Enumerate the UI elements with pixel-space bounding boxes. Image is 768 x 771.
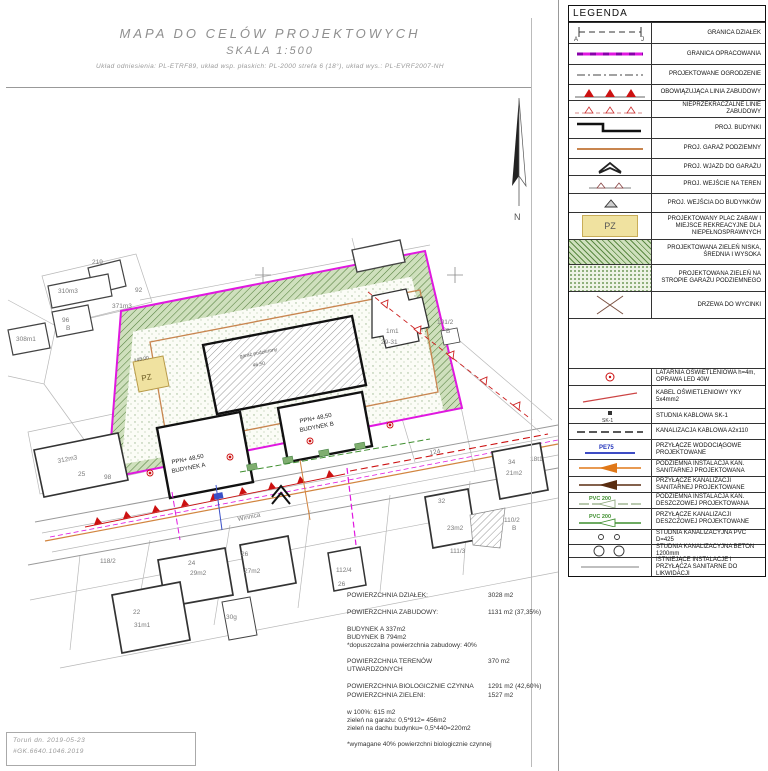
legend-label: PROJ. BUDYNKI bbox=[652, 118, 765, 138]
cable-duct-symbol bbox=[569, 424, 652, 439]
legend-row: NIEPRZEKRACZALNE LINIE ZABUDOWY bbox=[569, 100, 765, 117]
parcel-boundary-symbol: A J bbox=[569, 23, 652, 43]
parcel-label: 29-31 bbox=[381, 339, 398, 346]
stat-value: 3028 m2 bbox=[488, 592, 513, 600]
parcel-label: 24 bbox=[188, 560, 196, 567]
parcel-label: 1m1 bbox=[386, 328, 399, 335]
legend-label: STUDNIA KABLOWA SK-1 bbox=[652, 409, 765, 423]
building-entrance-symbol bbox=[569, 194, 652, 212]
legend-label: GRANICA OPRACOWANIA bbox=[652, 44, 765, 64]
stat-label: POWIERZCHNIA ZIELENI: bbox=[347, 692, 488, 700]
legend-row: GRANICA OPRACOWANIA bbox=[569, 43, 765, 64]
parcel-label: 22 bbox=[133, 609, 141, 616]
legend-row: KABEL OŚWIETLENIOWY YKY 5x4mm2 bbox=[569, 385, 765, 408]
footer-date: Toruń dn. 2019-05-23 bbox=[13, 737, 189, 744]
stat-value: 1291 m2 (42,60%) bbox=[488, 683, 541, 691]
parcel-label: 21m2 bbox=[506, 470, 523, 477]
setback-line-symbol bbox=[569, 101, 652, 117]
parcel-label: 23m2 bbox=[447, 525, 464, 532]
legend-label: PROJ. WEJŚCIA DO BUDYNKÓW bbox=[652, 194, 765, 212]
legend-spacer-row bbox=[569, 318, 765, 368]
legend-row: SK-1 STUDNIA KABLOWA SK-1 bbox=[569, 408, 765, 423]
legend-label: GRANICA DZIAŁEK bbox=[652, 23, 765, 43]
parcel-label: 32 bbox=[438, 498, 446, 505]
footer-case-number: #GK.6640.1046.2019 bbox=[13, 748, 189, 755]
water-connection-marker bbox=[214, 492, 224, 500]
map-title: MAPA DO CELÓW PROJEKTOWYCH bbox=[20, 26, 520, 41]
legend-label: DRZEWA DO WYCINKI bbox=[652, 292, 765, 318]
parcel-label: 34 bbox=[508, 459, 516, 466]
legend-row: PROJ. WEJŚCIE NA TEREN bbox=[569, 175, 765, 193]
parcel-label: 25 bbox=[78, 471, 86, 478]
sanitary-connection-symbol bbox=[569, 477, 652, 492]
parcel-label: 219 bbox=[92, 259, 103, 266]
legend-label: PROJ. WEJŚCIE NA TEREN bbox=[652, 176, 765, 193]
stat-row: POWIERZCHNIA ZIELENI: 1527 m2 bbox=[347, 692, 561, 700]
stat-label: POWIERZCHNIA BIOLOGICZNIE CZYNNA bbox=[347, 683, 488, 691]
legend-label: LATARNIA OŚWIETLENIOWA h=4m, OPRAWA LED … bbox=[652, 369, 765, 385]
parcel-label: 310m3 bbox=[58, 288, 78, 295]
north-label: N bbox=[514, 212, 521, 222]
stat-row: POWIERZCHNIA ZABUDOWY: 1131 m2 (37,35%) bbox=[347, 609, 561, 617]
legend-row: STUDNIA KANALIZACYJNA PVC D=425 bbox=[569, 529, 765, 544]
legend-label: STUDNIA KANALIZACYJNA PVC D=425 bbox=[652, 530, 765, 544]
legend-row: PROJEKTOWANE OGRODZENIE bbox=[569, 64, 765, 84]
stat-value: 1131 m2 (37,35%) bbox=[488, 609, 541, 617]
footer-box: Toruń dn. 2019-05-23 #GK.6640.1046.2019 bbox=[6, 732, 196, 766]
garage-entry-symbol bbox=[569, 159, 652, 175]
street-name: Winnica bbox=[237, 512, 261, 523]
svg-text:A: A bbox=[574, 37, 578, 42]
building-b-area: BUDYNEK B 794m2 bbox=[347, 634, 561, 642]
legend-row: PVC 200 PRZYŁĄCZE KANALIZACJI DESZCZOWEJ… bbox=[569, 508, 765, 529]
legend-label: PODZIEMNA INSTALACJA KAN. SANITARNEJ PRO… bbox=[652, 460, 765, 476]
storm-main-symbol: PVC 200 bbox=[569, 493, 652, 508]
allowed-coverage-note: *dopuszczalna powierzchnia zabudowy: 40% bbox=[347, 642, 561, 650]
hatched-parcel-111-3 bbox=[470, 508, 505, 548]
stat-value: 370 m2 bbox=[488, 658, 510, 674]
legend-row: PROJ. WEJŚCIA DO BUDYNKÓW bbox=[569, 193, 765, 212]
svg-text:PE75: PE75 bbox=[599, 445, 614, 451]
legend-label: PROJEKTOWANE OGRODZENIE bbox=[652, 65, 765, 84]
stat-row: POWIERZCHNIA BIOLOGICZNIE CZYNNA 1291 m2… bbox=[347, 683, 561, 691]
legend-label: PRZYŁĄCZE WODOCIĄGOWE PROJEKTOWANE bbox=[652, 440, 765, 459]
parcel-label: 29m2 bbox=[190, 570, 207, 577]
parcel-label: 111/3 bbox=[450, 548, 466, 555]
study-boundary-symbol bbox=[569, 44, 652, 64]
roof-greenery-symbol bbox=[569, 265, 652, 291]
lighting-cable-symbol bbox=[569, 386, 652, 408]
legend-label: STUDNIA KANALIZACYJNA BETON 1200mm bbox=[652, 545, 765, 557]
playground-symbol: PZ bbox=[569, 213, 652, 239]
legend-header: LEGENDA bbox=[569, 6, 765, 22]
parcel-label: 96 bbox=[62, 317, 70, 324]
parcel-label: 26 bbox=[241, 551, 249, 558]
legend-label: PROJ. GARAŻ PODZIEMNY bbox=[652, 139, 765, 158]
proposed-buildings-symbol bbox=[569, 118, 652, 138]
sanitary-main-symbol bbox=[569, 460, 652, 476]
pz-swatch: PZ bbox=[582, 215, 638, 237]
legend-label: PRZYŁĄCZE KANALIZACJI SANITARNEJ PROJEKT… bbox=[652, 477, 765, 492]
parcel-label: 92 bbox=[135, 287, 143, 294]
water-connection-symbol: PE75 bbox=[569, 440, 652, 459]
drawing-sheet: N 219 92 310m3 371m3 96 B 308m1 312m3 25… bbox=[0, 0, 768, 771]
legend-label: PROJ. WJAZD DO GARAŻU bbox=[652, 159, 765, 175]
parcel-label: 30g bbox=[226, 614, 237, 621]
legend-row: DRZEWA DO WYCINKI bbox=[569, 291, 765, 318]
parcel-label: 26 bbox=[338, 581, 346, 588]
required-green-note: *wymagane 40% powierzchni biologicznie c… bbox=[347, 741, 561, 749]
coordinate-system-note: Układ odniesienia: PL-ETRF89, układ wsp.… bbox=[20, 63, 520, 70]
existing-utilities-symbol bbox=[569, 558, 652, 576]
cable-well-symbol: SK-1 bbox=[569, 409, 652, 423]
area-statistics: POWIERZCHNIA DZIAŁEK: 3028 m2 POWIERZCHN… bbox=[347, 592, 561, 749]
svg-text:PVC 200: PVC 200 bbox=[589, 514, 611, 520]
legend-row: PROJEKTOWANA ZIELEŃ NA STROPIE GARAŻU PO… bbox=[569, 264, 765, 291]
road-parcel-label: 124 bbox=[429, 448, 441, 457]
legend-row: PROJ. WJAZD DO GARAŻU bbox=[569, 158, 765, 175]
underground-garage-symbol bbox=[569, 139, 652, 158]
stat-label: POWIERZCHNIA ZABUDOWY: bbox=[347, 609, 488, 617]
legend-row: STUDNIA KANALIZACYJNA BETON 1200mm bbox=[569, 544, 765, 557]
building-a bbox=[157, 412, 253, 498]
legend-row: PZ PROJEKTOWANY PLAC ZABAW I MIEJSCE REK… bbox=[569, 212, 765, 239]
stat-label: POWIERZCHNIA TERENÓW UTWARDZONYCH bbox=[347, 658, 488, 674]
parcel-label: B bbox=[512, 525, 516, 532]
parcel-label: 118/2 bbox=[100, 558, 116, 565]
svg-text:PVC 200: PVC 200 bbox=[589, 496, 611, 502]
north-arrow: N bbox=[512, 98, 526, 222]
legend-label: OBOWIĄZUJĄCA LINIA ZABUDOWY bbox=[652, 85, 765, 100]
legend-label: PROJEKTOWANA ZIELEŃ NISKA, ŚREDNIA I WYS… bbox=[652, 240, 765, 264]
fence-symbol bbox=[569, 65, 652, 84]
stat-row: POWIERZCHNIA DZIAŁEK: 3028 m2 bbox=[347, 592, 561, 600]
legend-row: PROJ. BUDYNKI bbox=[569, 117, 765, 138]
legend-label bbox=[569, 319, 765, 368]
legend-label: PROJEKTOWANY PLAC ZABAW I MIEJSCE REKREA… bbox=[652, 213, 765, 239]
legend-label: PODZIEMNA INSTALACJA KAN. DESZCZOWEJ PRO… bbox=[652, 493, 765, 508]
green-garage-line: zieleń na garażu: 0,5*912= 456m2 bbox=[347, 717, 561, 725]
site-entrance-symbol bbox=[569, 176, 652, 193]
parcel-label: 371m3 bbox=[112, 303, 132, 310]
legend-row: ISTNIEJĄCE INSTALACJE I PRZYŁĄCZA SANITA… bbox=[569, 557, 765, 576]
stat-label: POWIERZCHNIA DZIAŁEK: bbox=[347, 592, 488, 600]
svg-text:J: J bbox=[641, 37, 644, 42]
parcel-label: 112/4 bbox=[336, 567, 352, 574]
parcel-label: 27m2 bbox=[244, 568, 261, 575]
map-scale: SKALA 1:500 bbox=[20, 45, 520, 57]
legend-label: PROJEKTOWANA ZIELEŃ NA STROPIE GARAŻU PO… bbox=[652, 265, 765, 291]
greenery-symbol bbox=[569, 240, 652, 264]
legend-label: ISTNIEJĄCE INSTALACJE I PRZYŁĄCZA SANITA… bbox=[652, 558, 765, 576]
stat-row: POWIERZCHNIA TERENÓW UTWARDZONYCH 370 m2 bbox=[347, 658, 561, 674]
green-roof-line: zieleń na dachu budynku= 0,5*440=220m2 bbox=[347, 725, 561, 733]
obligatory-building-line-symbol bbox=[569, 85, 652, 100]
parcel-label: 101/2 bbox=[437, 319, 454, 326]
pvc-manhole-symbol bbox=[569, 530, 652, 544]
concrete-manhole-symbol bbox=[569, 545, 652, 557]
legend-row: OBOWIĄZUJĄCA LINIA ZABUDOWY bbox=[569, 84, 765, 100]
storm-connection-symbol: PVC 200 bbox=[569, 509, 652, 529]
tree-removal-symbol bbox=[569, 292, 652, 318]
legend-panel: LEGENDA A J GRANICA DZIAŁEK GRANICA OPRA… bbox=[568, 5, 766, 577]
legend-row: PE75 PRZYŁĄCZE WODOCIĄGOWE PROJEKTOWANE bbox=[569, 439, 765, 459]
parcel-label: 308m1 bbox=[16, 336, 36, 343]
legend-label: KABEL OŚWIETLENIOWY YKY 5x4mm2 bbox=[652, 386, 765, 408]
parcel-label: 31m1 bbox=[134, 622, 151, 629]
title-block: MAPA DO CELÓW PROJEKTOWYCH SKALA 1:500 U… bbox=[20, 26, 520, 70]
legend-row: PROJEKTOWANA ZIELEŃ NISKA, ŚREDNIA I WYS… bbox=[569, 239, 765, 264]
green-100-line: w 100%: 615 m2 bbox=[347, 709, 561, 717]
title-underline bbox=[6, 87, 531, 88]
legend-row: KANALIZACJA KABLOWA A2x110 bbox=[569, 423, 765, 439]
legend-row: PRZYŁĄCZE KANALIZACJI SANITARNEJ PROJEKT… bbox=[569, 476, 765, 492]
legend-row: PODZIEMNA INSTALACJA KAN. SANITARNEJ PRO… bbox=[569, 459, 765, 476]
building-a-area: BUDYNEK A 337m2 bbox=[347, 626, 561, 634]
street-lamp-symbol bbox=[569, 369, 652, 385]
legend-row: LATARNIA OŚWIETLENIOWA h=4m, OPRAWA LED … bbox=[569, 368, 765, 385]
parcel-label: 98 bbox=[104, 474, 112, 481]
stat-value: 1527 m2 bbox=[488, 692, 513, 700]
legend-label: NIEPRZEKRACZALNE LINIE ZABUDOWY bbox=[652, 101, 765, 117]
parcel-label: B bbox=[446, 328, 450, 335]
svg-text:SK-1: SK-1 bbox=[602, 418, 613, 423]
parcel-label: 110/2 bbox=[504, 517, 520, 524]
legend-label: PRZYŁĄCZE KANALIZACJI DESZCZOWEJ PROJEKT… bbox=[652, 509, 765, 529]
legend-row: PROJ. GARAŻ PODZIEMNY bbox=[569, 138, 765, 158]
legend-label: KANALIZACJA KABLOWA A2x110 bbox=[652, 424, 765, 439]
parcel-label: B bbox=[66, 325, 70, 332]
legend-row: PVC 200 PODZIEMNA INSTALACJA KAN. DESZCZ… bbox=[569, 492, 765, 508]
legend-row: A J GRANICA DZIAŁEK bbox=[569, 22, 765, 43]
